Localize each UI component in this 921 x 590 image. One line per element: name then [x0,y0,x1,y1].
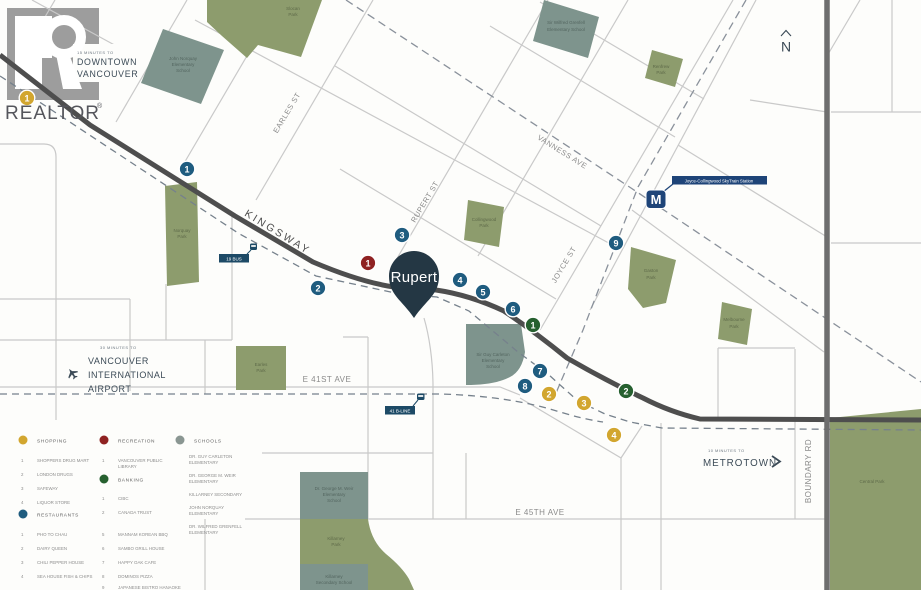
svg-text:Elementary School: Elementary School [547,27,585,32]
svg-text:Park: Park [479,223,489,228]
svg-text:SEA HOUSE FISH & CHIPS: SEA HOUSE FISH & CHIPS [37,574,92,579]
svg-text:BANKING: BANKING [118,478,144,484]
svg-text:KILLARNEY SECONDARY: KILLARNEY SECONDARY [189,492,242,497]
svg-text:CANADA TRUST: CANADA TRUST [118,510,152,515]
svg-text:Elementary: Elementary [172,62,196,67]
svg-text:LIBRARY: LIBRARY [118,464,137,469]
svg-text:ELEMENTARY: ELEMENTARY [189,511,218,516]
svg-text:DOMINOS PIZZA: DOMINOS PIZZA [118,574,153,579]
svg-text:LIQUOR STORE: LIQUOR STORE [37,500,70,505]
svg-text:Central Park: Central Park [859,479,885,484]
svg-text:7: 7 [537,367,542,377]
svg-text:HAPPY OAK CAFE: HAPPY OAK CAFE [118,560,156,565]
svg-text:VANCOUVER: VANCOUVER [77,69,138,79]
svg-text:SAFEWAY: SAFEWAY [37,486,58,491]
svg-text:METROTOWN: METROTOWN [703,458,777,469]
svg-text:Collingwood: Collingwood [472,217,497,222]
svg-text:Killarney: Killarney [325,574,343,579]
svg-text:Dr. George M. Weir: Dr. George M. Weir [315,486,354,491]
svg-text:John Norquay: John Norquay [169,56,198,61]
svg-text:1: 1 [24,94,29,104]
svg-text:PHO TO CHAU: PHO TO CHAU [37,532,67,537]
svg-text:M: M [651,192,662,207]
svg-text:3: 3 [399,231,404,241]
svg-text:DAIRY QUEEN: DAIRY QUEEN [37,546,67,551]
svg-text:Killarney: Killarney [327,536,345,541]
svg-text:DR. WILFRED GRENFELL: DR. WILFRED GRENFELL [189,524,242,529]
svg-text:Park: Park [646,275,656,280]
svg-text:1: 1 [530,321,535,331]
svg-text:AIRPORT: AIRPORT [88,384,131,394]
svg-text:School: School [327,498,341,503]
svg-text:SHOPPERS DRUG MART: SHOPPERS DRUG MART [37,458,89,463]
svg-text:19 BUS: 19 BUS [226,256,242,261]
svg-text:1: 1 [184,165,189,175]
svg-text:5: 5 [480,288,485,298]
svg-text:6: 6 [510,305,515,315]
svg-text:RESTAURANTS: RESTAURANTS [37,513,79,519]
svg-text:Rupert: Rupert [391,269,438,286]
svg-text:Earles: Earles [255,362,269,367]
svg-text:Elementary: Elementary [323,492,347,497]
svg-text:Park: Park [256,368,266,373]
svg-text:Park: Park [177,234,187,239]
svg-text:INTERNATIONAL: INTERNATIONAL [88,370,166,380]
svg-text:30 MINUTES TO: 30 MINUTES TO [100,345,137,350]
svg-text:MANNAM KOREAN BBQ: MANNAM KOREAN BBQ [118,532,168,537]
svg-text:BOUNDARY RD: BOUNDARY RD [804,439,813,503]
svg-text:15 MINUTES TO: 15 MINUTES TO [77,50,114,55]
svg-text:Sir Wilfred Grenfell: Sir Wilfred Grenfell [547,20,585,25]
svg-text:DOWNTOWN: DOWNTOWN [77,57,137,67]
svg-text:SCHOOLS: SCHOOLS [194,439,222,445]
svg-text:RECREATION: RECREATION [118,439,155,445]
svg-text:ELEMENTARY: ELEMENTARY [189,460,218,465]
svg-text:Slocan: Slocan [286,6,300,11]
svg-text:4: 4 [611,431,616,441]
svg-text:9: 9 [613,239,618,249]
svg-text:®: ® [97,102,103,110]
svg-text:N: N [781,39,791,55]
svg-text:SHOPPING: SHOPPING [37,439,67,445]
svg-text:CIBC: CIBC [118,496,129,501]
svg-text:41 B-LINE: 41 B-LINE [390,408,411,413]
svg-text:JAPANESE BISTRO HANAOKE: JAPANESE BISTRO HANAOKE [118,585,181,590]
svg-text:E 45TH AVE: E 45TH AVE [515,508,564,517]
svg-text:Joyce-Collingwood SkyTrain Sta: Joyce-Collingwood SkyTrain Station [685,178,754,183]
svg-text:JOHN NORQUAY: JOHN NORQUAY [189,505,224,510]
svg-text:10 MINUTES TO: 10 MINUTES TO [708,448,745,453]
svg-text:ELEMENTARY: ELEMENTARY [189,479,218,484]
svg-text:LONDON DRUGS: LONDON DRUGS [37,472,73,477]
svg-text:1: 1 [365,259,370,269]
svg-text:Park: Park [656,70,666,75]
svg-text:Melbourne: Melbourne [723,317,745,322]
svg-text:ELEMENTARY: ELEMENTARY [189,530,218,535]
svg-text:Elementary: Elementary [482,358,506,363]
svg-text:2: 2 [315,284,320,294]
svg-text:SAMBO GRILL HOUSE: SAMBO GRILL HOUSE [118,546,165,551]
svg-text:School: School [486,364,500,369]
svg-text:Norquay: Norquay [173,228,191,233]
svg-text:VANCOUVER: VANCOUVER [88,356,149,366]
svg-text:School: School [176,68,190,73]
svg-text:3: 3 [581,399,586,409]
svg-text:CHILI PEPPER HOUSE: CHILI PEPPER HOUSE [37,560,84,565]
svg-text:Park: Park [331,542,341,547]
svg-text:4: 4 [457,276,462,286]
svg-text:2: 2 [546,390,551,400]
svg-text:Renfrew: Renfrew [653,64,671,69]
svg-text:Gaston: Gaston [644,268,659,273]
svg-text:2: 2 [623,387,628,397]
svg-text:Secondary School: Secondary School [316,580,353,585]
svg-text:VANCOUVER PUBLIC: VANCOUVER PUBLIC [118,458,163,463]
svg-text:Sir Guy Carleton: Sir Guy Carleton [476,352,510,357]
svg-text:Park: Park [729,324,739,329]
svg-text:DR. GUY CARLETON: DR. GUY CARLETON [189,454,232,459]
svg-text:E 41ST AVE: E 41ST AVE [303,375,352,384]
svg-text:DR. GEORGE M. WEIR: DR. GEORGE M. WEIR [189,473,236,478]
svg-text:REALTOR: REALTOR [5,103,100,124]
svg-text:Park: Park [288,12,298,17]
svg-text:8: 8 [522,382,527,392]
